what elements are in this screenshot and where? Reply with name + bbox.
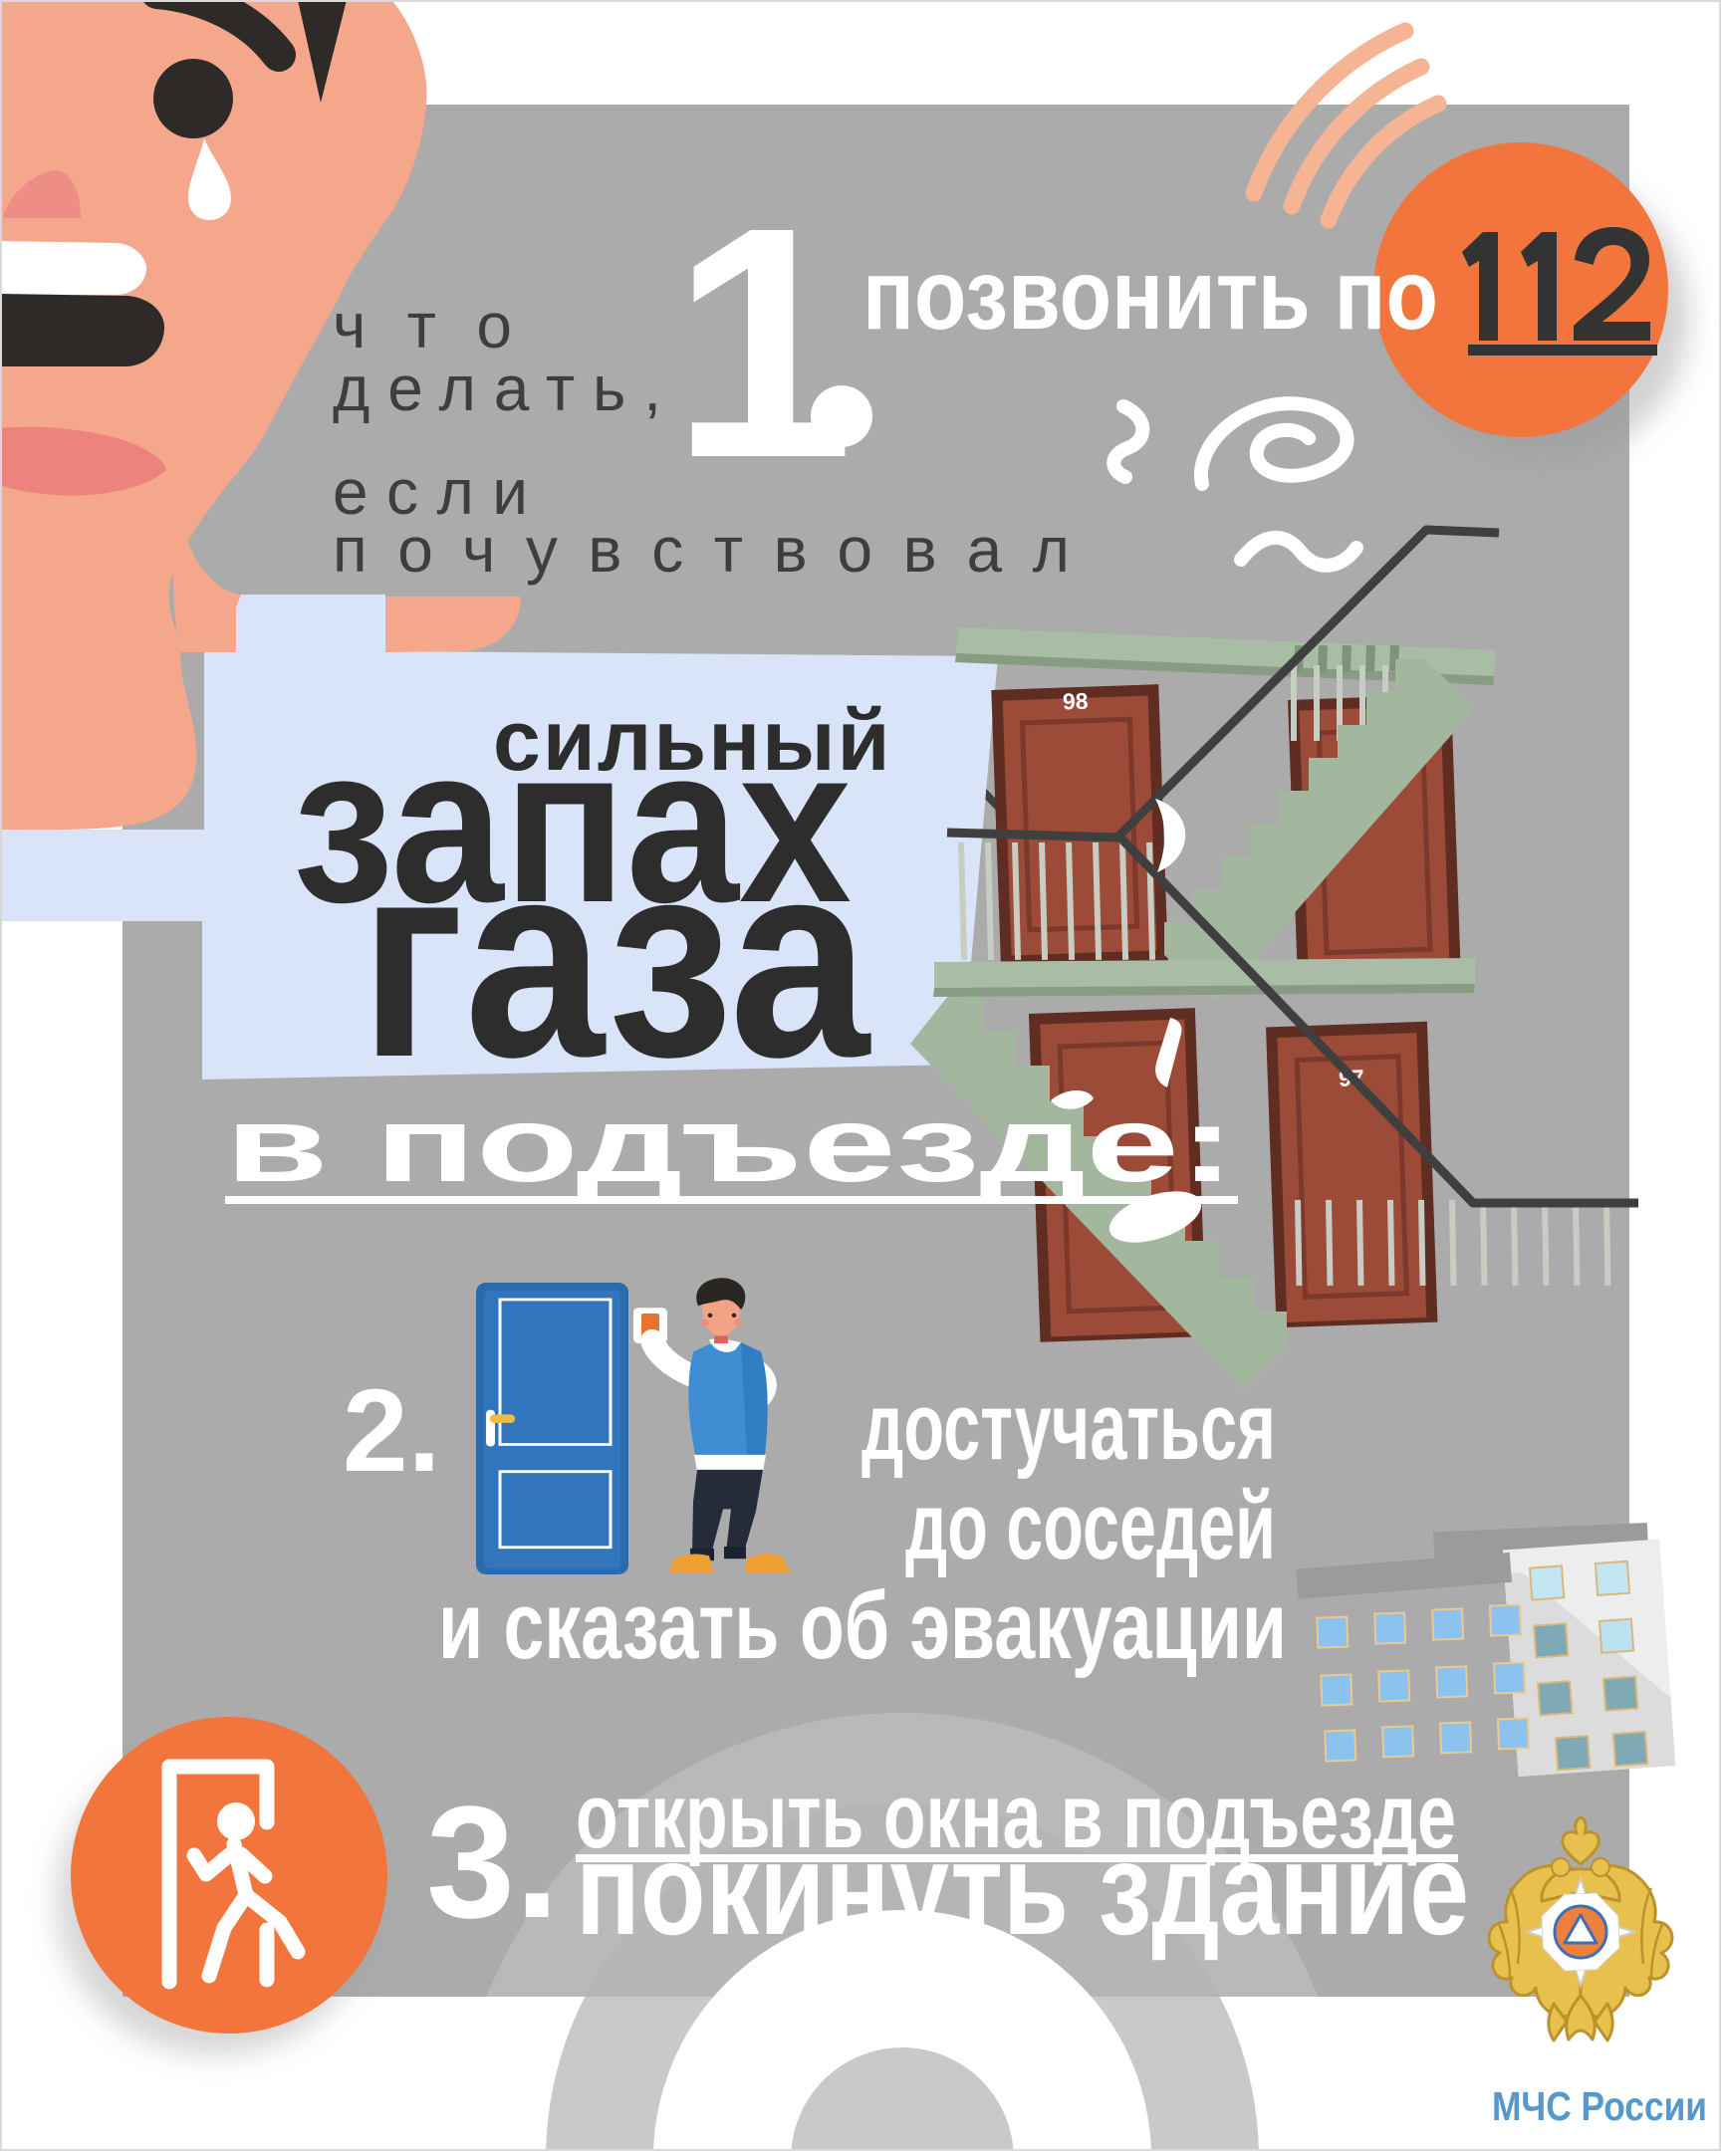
- svg-text:позвонить по: позвонить по: [862, 239, 1438, 351]
- svg-text:МЧС России: МЧС России: [1492, 2083, 1707, 2129]
- svg-text:в подъезде:: в подъезде:: [225, 1083, 1235, 1204]
- svg-text:газа: газа: [360, 803, 871, 1115]
- svg-text:2.: 2.: [343, 1365, 440, 1497]
- svg-text:покинуть здание: покинуть здание: [576, 1815, 1469, 1962]
- svg-text:98: 98: [1062, 688, 1089, 715]
- svg-text:достучаться: достучаться: [861, 1373, 1276, 1480]
- svg-text:1: 1: [671, 158, 855, 526]
- svg-text:до соседей: до соседей: [905, 1473, 1276, 1579]
- svg-text:3.: 3.: [426, 1773, 559, 1951]
- svg-text:что: что: [333, 290, 512, 361]
- svg-text:и сказать об эвакуации: и сказать об эвакуации: [438, 1572, 1287, 1679]
